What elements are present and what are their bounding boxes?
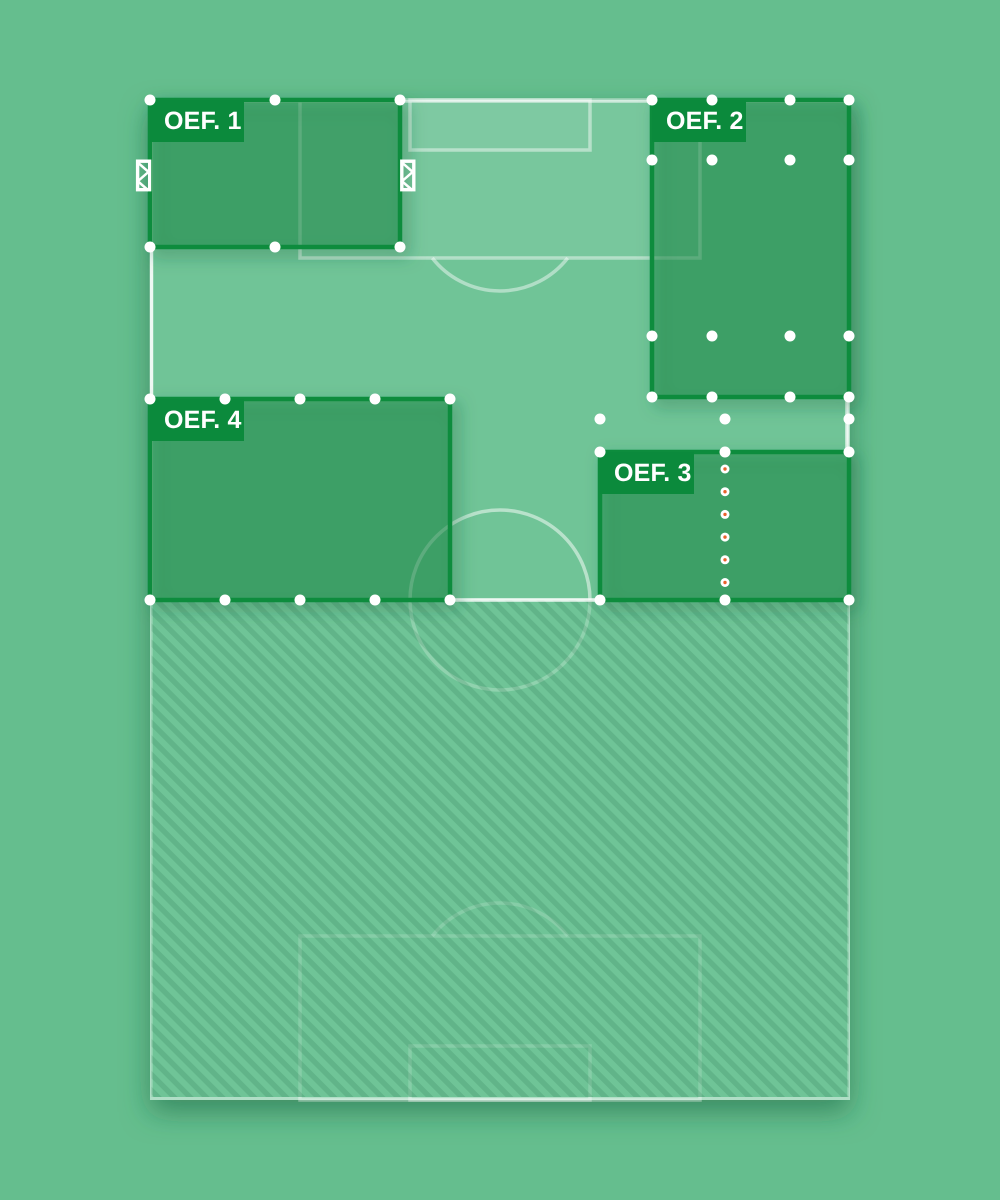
svg-text:OEF. 2: OEF. 2 <box>666 107 744 135</box>
svg-text:OEF. 3: OEF. 3 <box>614 459 692 487</box>
svg-text:OEF. 4: OEF. 4 <box>164 406 242 434</box>
svg-text:OEF. 1: OEF. 1 <box>164 107 242 135</box>
